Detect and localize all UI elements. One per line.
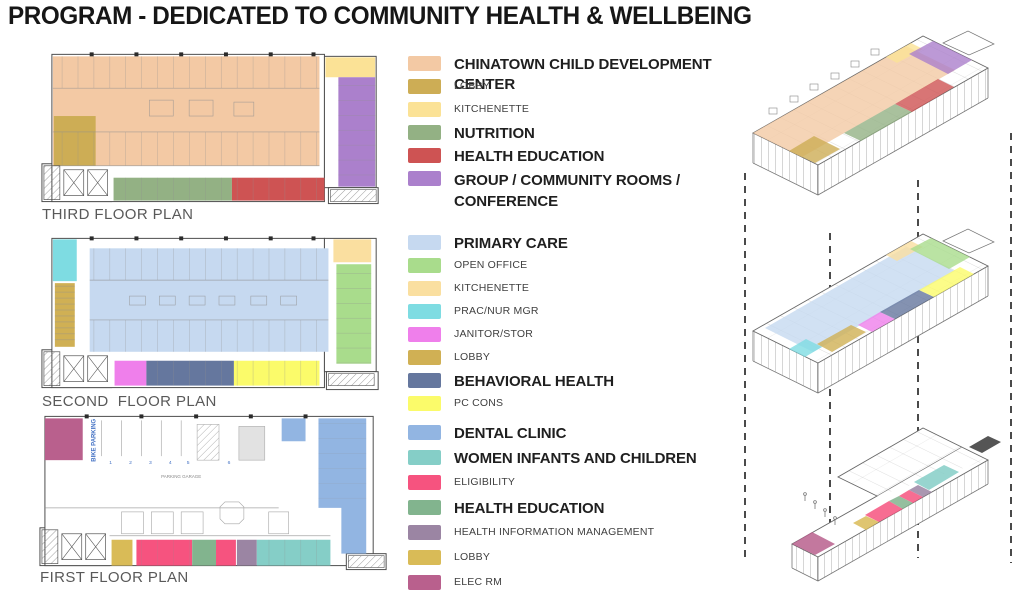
legend-swatch	[408, 171, 441, 186]
zone-him	[237, 540, 257, 566]
zone-kitchenette	[333, 239, 371, 262]
legend-item: OPEN OFFICE	[408, 257, 753, 273]
svg-text:4: 4	[169, 460, 172, 466]
legend-label: CHINATOWN CHILD DEVELOPMENT CENTER	[454, 55, 753, 95]
legend-item: WOMEN INFANTS AND CHILDREN	[408, 449, 753, 469]
legend-label: LOBBY	[454, 78, 490, 94]
legend-swatch	[408, 235, 441, 250]
legend-swatch	[408, 125, 441, 140]
third-floor-plan	[30, 40, 408, 205]
zone-prac-nur-mgr	[53, 239, 77, 281]
axon-dark-stair	[969, 436, 1001, 453]
legend-item: DENTAL CLINIC	[408, 424, 753, 444]
legend-label: PRAC/NUR MGR	[454, 303, 539, 319]
legend-item: CHINATOWN CHILD DEVELOPMENT CENTER	[408, 55, 753, 75]
legend-item: KITCHENETTE	[408, 280, 753, 296]
legend-swatch	[408, 304, 441, 319]
legend-label: PRIMARY CARE	[454, 234, 568, 254]
axon-bollards	[804, 493, 837, 525]
first-floor-plan-drawing: BIKE PARKING PARKING GARAGE 1 2 3 4 5 6	[30, 408, 408, 573]
zone-kitchenette	[325, 57, 375, 77]
page-title: PROGRAM - DEDICATED TO COMMUNITY HEALTH …	[8, 2, 752, 31]
legend-label: OPEN OFFICE	[454, 257, 527, 273]
svg-text:2: 2	[129, 460, 132, 466]
legend-item: GROUP / COMMUNITY ROOMS / CONFERENCE	[408, 170, 753, 212]
legend-swatch	[408, 500, 441, 515]
legend-label: NUTRITION	[454, 124, 535, 144]
legend-swatch	[408, 148, 441, 163]
first-floor-plan-label: FIRST FLOOR PLAN	[40, 569, 189, 586]
svg-text:3: 3	[149, 460, 152, 466]
legend-label: HEALTH EDUCATION	[454, 499, 604, 519]
legend-item: KITCHENETTE	[408, 101, 753, 117]
legend-item: PRAC/NUR MGR	[408, 303, 753, 319]
legend-swatch	[408, 56, 441, 71]
zone-lobby	[112, 540, 133, 566]
legend-item: ELEC RM	[408, 574, 753, 590]
third-floor-plan-drawing	[30, 40, 408, 205]
legend-item: LOBBY	[408, 549, 753, 565]
legend-swatch	[408, 102, 441, 117]
legend-item: ELIGIBILITY	[408, 474, 753, 490]
legend-label: LOBBY	[454, 549, 490, 565]
legend-label: JANITOR/STOR	[454, 326, 533, 342]
legend-item: HEALTH EDUCATION	[408, 147, 753, 167]
legend-item: LOBBY	[408, 349, 753, 365]
svg-text:6: 6	[228, 460, 231, 466]
legend-swatch	[408, 525, 441, 540]
legend-item: PRIMARY CARE	[408, 234, 753, 254]
legend-label: LOBBY	[454, 349, 490, 365]
legend-item: NUTRITION	[408, 124, 753, 144]
parking-garage-label: PARKING GARAGE	[161, 474, 201, 479]
bike-parking-label: BIKE PARKING	[92, 418, 98, 461]
svg-text:1: 1	[109, 460, 112, 466]
zone-elec-rm	[45, 418, 83, 460]
legend-swatch	[408, 373, 441, 388]
legend-label: GROUP / COMMUNITY ROOMS / CONFERENCE	[454, 170, 680, 212]
legend-label: HEALTH EDUCATION	[454, 147, 604, 167]
legend-group-primary-care: PRIMARY CARE OPEN OFFICE KITCHENETTE PRA…	[408, 234, 753, 418]
second-floor-plan-drawing	[30, 228, 408, 393]
legend-label: ELEC RM	[454, 574, 502, 590]
legend-swatch	[408, 425, 441, 440]
legend-swatch	[408, 258, 441, 273]
legend-item: PC CONS	[408, 395, 753, 411]
legend-swatch	[408, 575, 441, 590]
legend-label: KITCHENETTE	[454, 101, 529, 117]
legend-swatch	[408, 281, 441, 296]
svg-text:5: 5	[187, 460, 190, 466]
third-floor-plan-label: THIRD FLOOR PLAN	[42, 206, 193, 223]
legend-label: ELIGIBILITY	[454, 474, 515, 490]
axon-first-floor	[733, 400, 1024, 592]
legend-swatch	[408, 79, 441, 94]
axon-third-floor	[733, 8, 1024, 203]
legend-swatch	[408, 396, 441, 411]
second-floor-plan	[30, 228, 408, 393]
zone-health-education	[192, 540, 216, 566]
legend-label: HEALTH INFORMATION MANAGEMENT	[454, 524, 654, 540]
legend-item: HEALTH EDUCATION	[408, 499, 753, 519]
legend-swatch	[408, 327, 441, 342]
legend-group-first-floor: DENTAL CLINIC WOMEN INFANTS AND CHILDREN…	[408, 424, 753, 594]
zone-eligibility-b	[216, 540, 236, 566]
axon-second-floor	[733, 206, 1024, 401]
program-board: PROGRAM - DEDICATED TO COMMUNITY HEALTH …	[0, 0, 1024, 594]
legend-swatch	[408, 450, 441, 465]
legend-item: HEALTH INFORMATION MANAGEMENT	[408, 524, 753, 540]
legend-label: DENTAL CLINIC	[454, 424, 566, 444]
legend-label: WOMEN INFANTS AND CHILDREN	[454, 449, 697, 469]
legend-group-ccdc: CHINATOWN CHILD DEVELOPMENT CENTER LOBBY…	[408, 55, 753, 215]
legend-item: JANITOR/STOR	[408, 326, 753, 342]
legend-swatch	[408, 550, 441, 565]
legend-label: PC CONS	[454, 395, 503, 411]
first-floor-plan: BIKE PARKING PARKING GARAGE 1 2 3 4 5 6	[30, 408, 408, 573]
zone-janitor-stor	[115, 361, 147, 386]
legend-label: BEHAVIORAL HEALTH	[454, 372, 614, 392]
axonometric-stack	[733, 8, 1024, 592]
legend-label: KITCHENETTE	[454, 280, 529, 296]
legend-item: BEHAVIORAL HEALTH	[408, 372, 753, 392]
legend-swatch	[408, 475, 441, 490]
zone-dental-clinic-a	[282, 418, 306, 441]
zone-lobby	[55, 283, 75, 347]
legend-swatch	[408, 350, 441, 365]
